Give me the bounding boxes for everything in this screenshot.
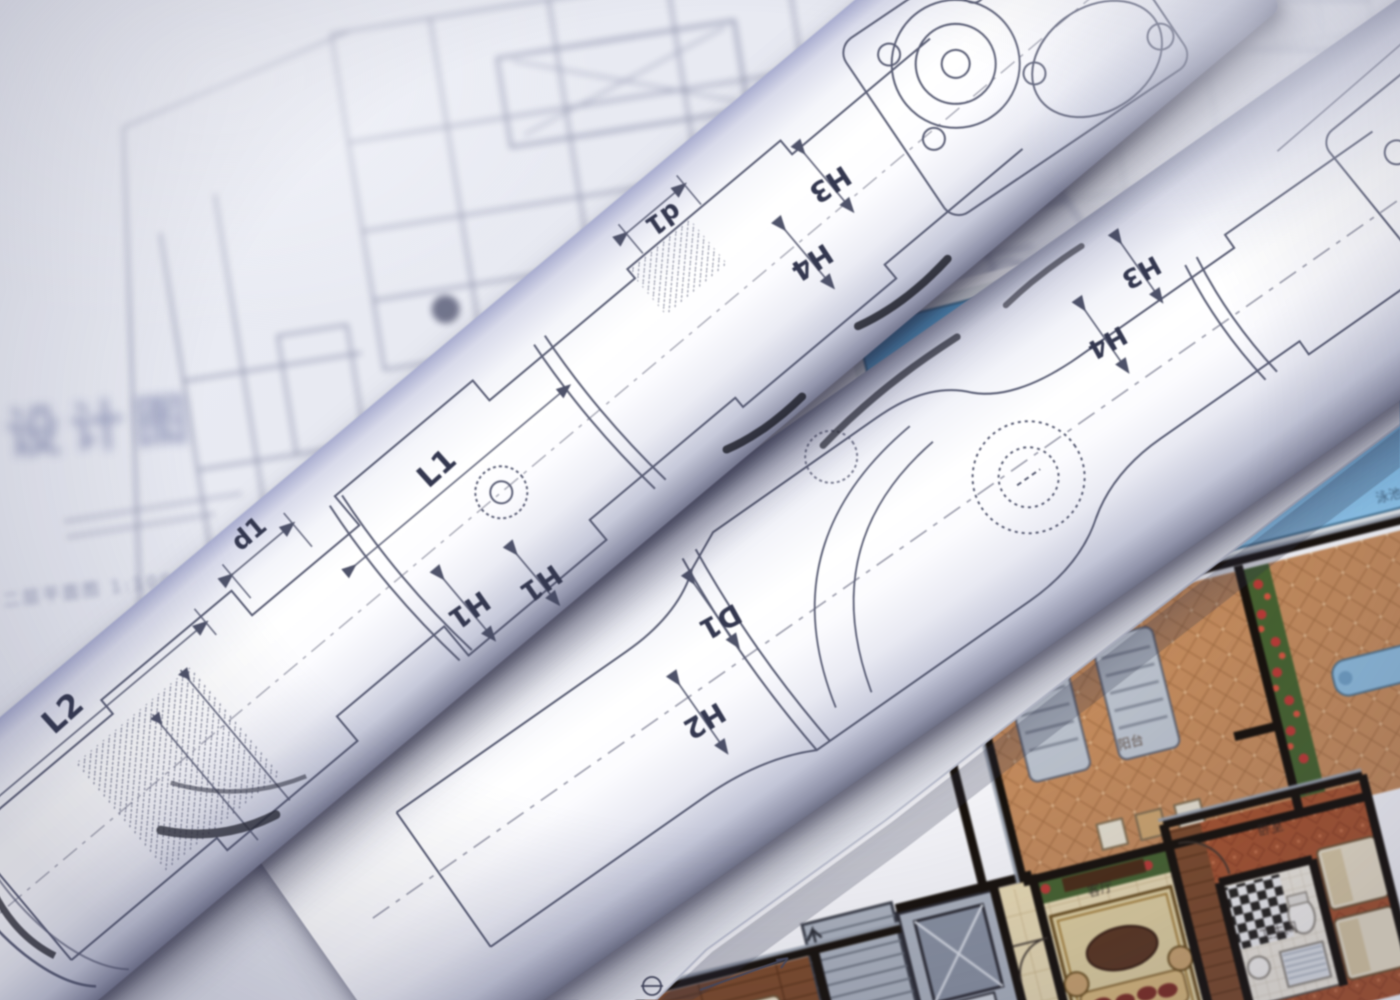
dim-label-L1: L1 <box>410 442 463 495</box>
dim-label-H1-b: H1 <box>514 558 568 610</box>
dim-label-H2: H2 <box>678 696 732 746</box>
dim-label-H3-b: H3 <box>1116 249 1165 295</box>
dim-label-D1: D1 <box>694 597 747 647</box>
stamp-title: 设计图 <box>3 374 201 469</box>
photo-canvas: 设计图 二层平面图 1:100 <box>0 0 1400 1000</box>
dim-label-H4-a: H4 <box>785 237 839 288</box>
dim-label-L2: L2 <box>34 685 91 742</box>
dim-label-H3-a: H3 <box>803 159 857 210</box>
